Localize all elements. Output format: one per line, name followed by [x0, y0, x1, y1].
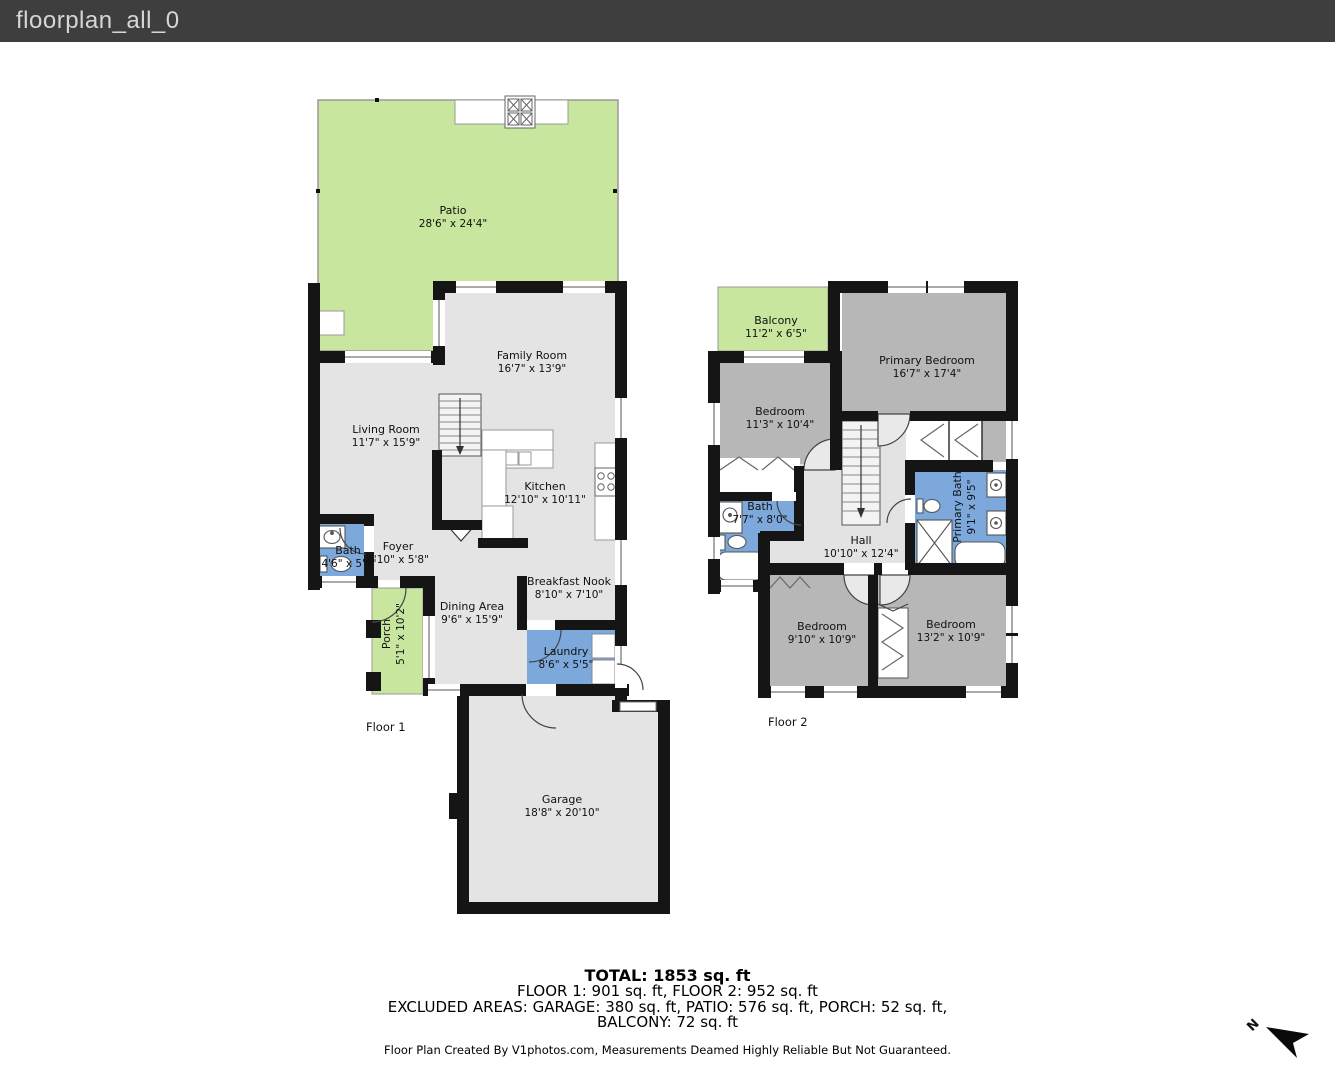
kitchen-sink-icon [506, 452, 518, 465]
excluded-areas-line2: BALCONY: 72 sq. ft [0, 1015, 1335, 1031]
floorplan-page: floorplan_all_0 [0, 0, 1335, 1080]
room-dims-bedroomC: 13'2" x 10'9" [917, 632, 985, 644]
room-label-kitchen: Kitchen [524, 480, 565, 493]
room-label-foyer: Foyer [383, 540, 414, 553]
room-dims-laundry: 8'6" x 5'5" [538, 659, 593, 671]
floor1-plan: Patio 28'6" x 24'4" Family Room 16'7" x … [308, 96, 670, 914]
bathtub-icon [718, 552, 764, 580]
room-dims-bedroomA: 11'3" x 10'4" [746, 419, 814, 431]
room-label-porch: Porch [380, 619, 393, 649]
washer-icon [592, 634, 615, 658]
room-label-bath1: Bath [335, 544, 361, 557]
room-dims-nook: 8'10" x 7'10" [535, 589, 603, 601]
room-label-laundry: Laundry [544, 645, 589, 658]
room-label-primary-bath: Primary Bath [951, 471, 964, 543]
room-label-garage: Garage [542, 793, 583, 806]
room-dims-hall: 10'10" x 12'4" [823, 548, 898, 560]
stairs-floor2 [842, 421, 880, 525]
room-dims-living: 11'7" x 15'9" [352, 437, 420, 449]
room-dims-porch: 5'1" x 10'2" [395, 603, 407, 665]
room-dims-primary-bedroom: 16'7" x 17'4" [893, 368, 961, 380]
porch-post [366, 620, 381, 638]
room-dims-family: 16'7" x 13'9" [498, 363, 566, 375]
room-label-nook: Breakfast Nook [527, 575, 612, 588]
grill-icon [505, 96, 535, 128]
room-dims-dining: 9'6" x 15'9" [441, 614, 503, 626]
room-dims-garage: 18'8" x 20'10" [524, 807, 599, 819]
room-label-bedroomC: Bedroom [926, 618, 976, 631]
room-dims-bath1: 4'6" x 5'4" [321, 558, 376, 570]
room-label-living: Living Room [352, 423, 420, 436]
room-dims-kitchen: 12'10" x 10'11" [504, 494, 586, 506]
room-label-bath2: Bath [747, 500, 773, 513]
floor2-label: Floor 2 [768, 715, 808, 729]
room-label-hall: Hall [850, 534, 871, 547]
room-dims-bath2: 7'7" x 8'0" [732, 514, 787, 526]
room-dims-primary-bath: 9'1" x 9'5" [966, 479, 978, 534]
patio-step [318, 311, 344, 335]
floor1-label: Floor 1 [366, 720, 406, 734]
room-label-bedroomB: Bedroom [797, 620, 847, 633]
room-label-family: Family Room [497, 349, 567, 362]
room-dims-bedroomB: 9'10" x 10'9" [788, 634, 856, 646]
room-label-patio: Patio [440, 204, 467, 217]
toilet-icon [917, 499, 923, 513]
floorplan-canvas: Patio 28'6" x 24'4" Family Room 16'7" x … [0, 0, 1335, 1080]
floor2-plan: Balcony 11'2" x 6'5" Primary Bedroom 16'… [708, 281, 1018, 729]
room-label-balcony: Balcony [754, 314, 798, 327]
front-step [620, 702, 656, 711]
room-label-dining: Dining Area [440, 600, 504, 613]
area-summary: TOTAL: 1853 sq. ft FLOOR 1: 901 sq. ft, … [0, 968, 1335, 1057]
room-dims-patio: 28'6" x 24'4" [419, 218, 487, 230]
porch-post [366, 672, 381, 691]
floor1-interior [318, 293, 658, 902]
disclaimer: Floor Plan Created By V1photos.com, Meas… [0, 1043, 1335, 1057]
dryer-icon [592, 660, 615, 684]
room-label-primary-bedroom: Primary Bedroom [879, 354, 975, 367]
room-dims-balcony: 11'2" x 6'5" [745, 328, 807, 340]
room-label-bedroomA: Bedroom [755, 405, 805, 418]
